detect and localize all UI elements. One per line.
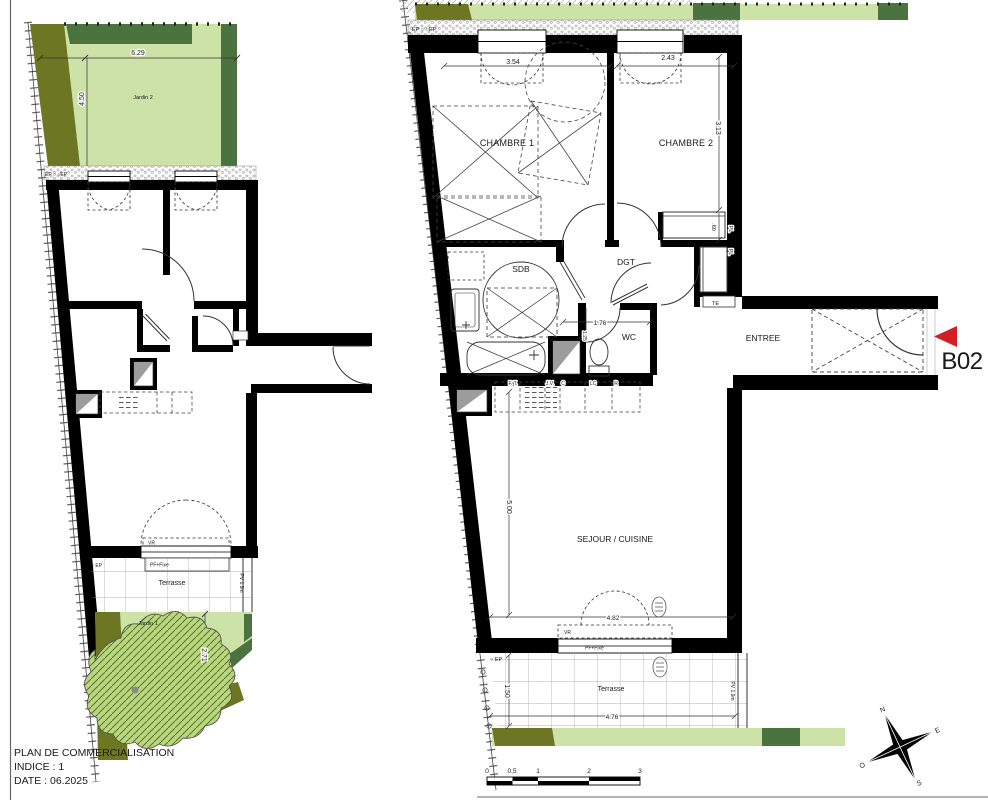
oep-b02-label: ○ EP [490, 657, 503, 663]
title-block: PLAN DE COMMERCIALISATION INDICE : 1 DAT… [14, 747, 174, 787]
b02-lawn-strip-top [415, 3, 908, 20]
unit-marker-arrow [934, 326, 957, 347]
wc-label: WC [622, 332, 636, 342]
floor-plan-drawing: N E S O 0 0,5 1 2 3 Jardin 2 6.29 4.50 E… [0, 0, 988, 800]
terrasse-b02-label: Terrasse [598, 686, 625, 693]
title-line1: PLAN DE COMMERCIALISATION [14, 747, 174, 759]
left-plan [28, 22, 372, 782]
b02-window-dims [441, 63, 737, 69]
pv-b02-label: PV 1.9m [729, 681, 735, 700]
pl2-label: PL [727, 249, 733, 256]
b02-dishrack [523, 385, 557, 409]
scale-3: 3 [638, 768, 642, 775]
chambre-1-label: CHAMBRE 1 [480, 138, 534, 148]
entree-label: ENTREE [746, 333, 781, 343]
kitchen-r-label: R [614, 381, 618, 387]
scale-0: 0 [485, 768, 489, 775]
dgt-doors [611, 263, 699, 305]
ep-band-left-label: EP ○ ○EP [45, 172, 68, 178]
b02-lawn-strip-bottom [492, 728, 845, 746]
scale-1: 1 [536, 768, 540, 775]
compass-n: N [879, 706, 887, 714]
vr-left-label: VR [148, 541, 155, 547]
pf-b02-label: PF+Fixe [585, 646, 604, 652]
chambre-2-label: CHAMBRE 2 [659, 138, 713, 148]
pv-left-label: PV 1.9m [238, 573, 244, 592]
unit-label: B02 [941, 348, 982, 375]
vr-b02-label: VR [564, 630, 571, 636]
dim-6-29: 6.29 [131, 50, 145, 57]
ep-band-b02-label: EP ○ ○EP [412, 27, 437, 33]
dim-1-25: 1.25 [581, 331, 587, 341]
title-line3: DATE : 06.2025 [14, 775, 88, 787]
entree-closet [812, 309, 923, 372]
sejour-bay [558, 591, 672, 653]
kitchen-c-label: C [561, 381, 565, 387]
dim-5-00: 5.00 [505, 500, 512, 514]
scale-2: 2 [587, 768, 591, 775]
jardin-1-label: Jardin 1 [138, 621, 158, 627]
left-plan-door-swings [88, 182, 231, 546]
gravel-band-b02 [408, 20, 738, 35]
kitchen-ft-label: F. T. [508, 381, 517, 387]
ep-markers [481, 670, 491, 728]
compass-o: O [859, 762, 867, 771]
compass-s: S [916, 779, 923, 787]
dim-2-71: 2.71 [200, 648, 207, 662]
sdb-label: SDB [512, 264, 530, 274]
dim-2-43: 2.43 [661, 55, 675, 62]
left-plan-dishrack [118, 394, 138, 411]
dim-4-50: 4.50 [79, 92, 86, 106]
compass-e: E [934, 727, 941, 735]
b02-window-swings [481, 53, 681, 85]
floor-plan-canvas: N E S O 0 0,5 1 2 3 Jardin 2 6.29 4.50 E… [0, 0, 988, 800]
b02-plan [400, 0, 957, 790]
dim-pl-60: .60 [710, 223, 716, 231]
left-plan-kitchen [100, 392, 192, 413]
dgt-label: DGT [617, 257, 635, 267]
oep-left-label: ○ EP [91, 563, 103, 569]
terrasse-left-label: Terrasse [159, 580, 186, 587]
dim-4-76: 4.76 [606, 714, 619, 721]
scale-05: 0,5 [507, 768, 516, 775]
b02-walls [408, 35, 938, 653]
dim-3-13: 3.13 [714, 121, 721, 135]
kitchen-jv-label: J.V. [546, 381, 554, 387]
pl1-label: PL [727, 226, 733, 233]
gravel-band-left [44, 166, 256, 180]
scale-bar: 0 0,5 1 2 3 [485, 768, 642, 785]
jardin-2-label: Jardin 2 [133, 95, 153, 101]
dim-1-76: 1.76 [594, 320, 607, 327]
compass-rose: N E S O [841, 689, 959, 800]
te-label: TE [712, 301, 719, 307]
wc-fixtures [586, 308, 620, 376]
pf-left-label: PF+Fixe [150, 563, 169, 569]
sejour-label: SEJOUR / CUISINE [577, 534, 653, 544]
entry-door-arc [877, 309, 923, 355]
title-line2: INDICE : 1 [14, 761, 64, 773]
kitchen-lc-label: LC [590, 381, 597, 387]
dim-1-50: 1.50 [503, 684, 510, 698]
dim-4-82: 4.82 [607, 615, 620, 622]
dim-3-54: 3.54 [506, 59, 520, 66]
